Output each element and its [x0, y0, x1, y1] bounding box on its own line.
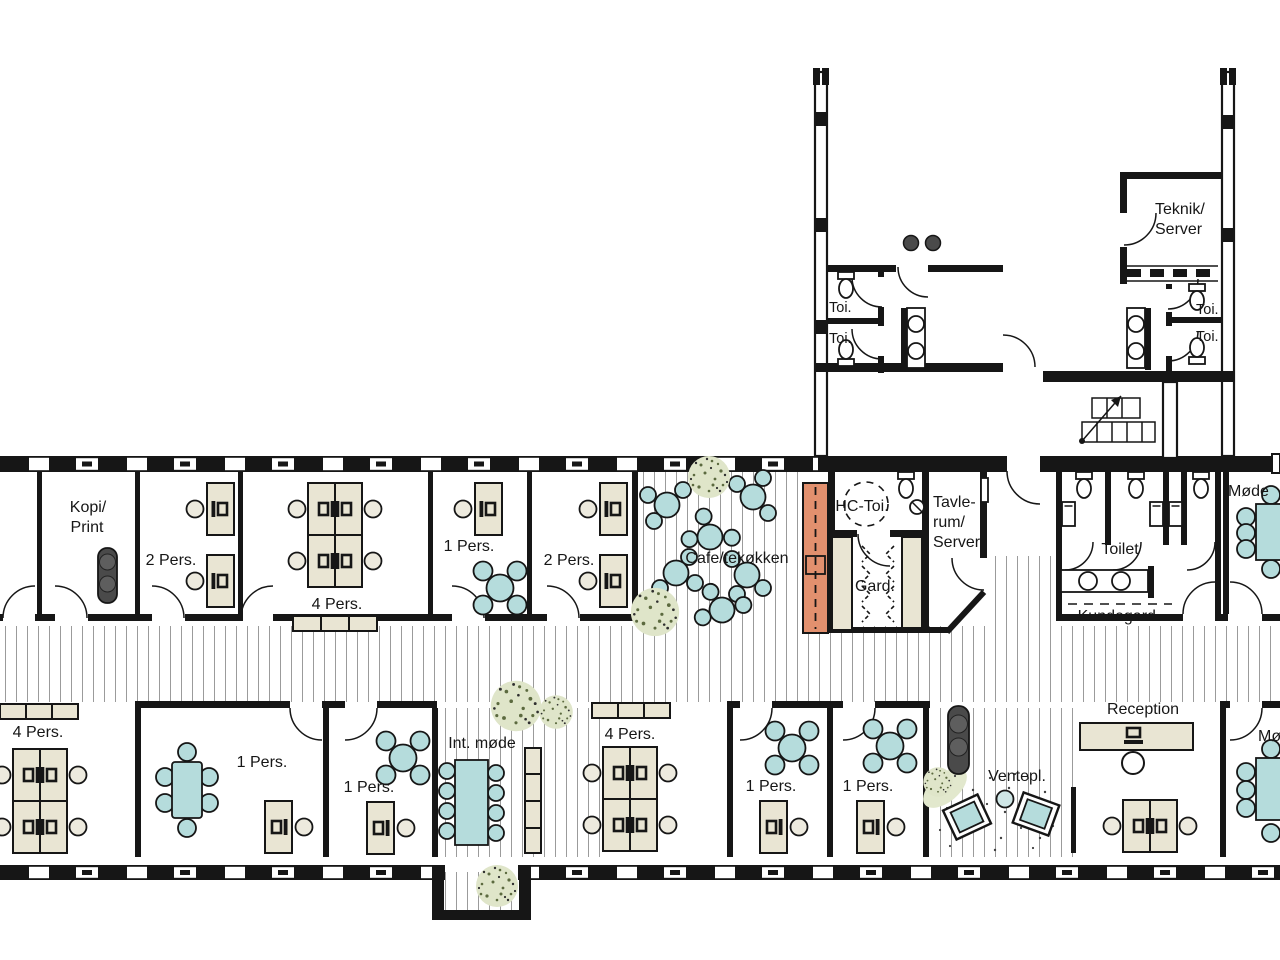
- label-ventepl: Ventepl.: [988, 768, 1046, 785]
- vanity-icon: [1061, 570, 1148, 592]
- label-tavlerum: Tavle-: [933, 494, 976, 511]
- room-1pers-b: [156, 743, 313, 853]
- room-tavlerum: [981, 478, 988, 502]
- sideboard-icon: [0, 704, 78, 719]
- label-reception: Reception: [1107, 701, 1179, 718]
- label-int-mode: Int. møde: [448, 735, 516, 752]
- room-2pers-b: [580, 483, 628, 607]
- meeting-table-icon: [1256, 758, 1280, 820]
- label-hc-toi: HC-Toi.: [835, 498, 888, 515]
- label-4pers-c: 4 Pers.: [605, 726, 656, 743]
- room-mode-bottom: [1237, 740, 1280, 842]
- floor-plan: Kopi/ Print 2 Pers. 4 Pers. 1 Pers. 2 Pe…: [0, 0, 1280, 960]
- label-toi-3: Toi.: [1196, 302, 1219, 318]
- label-kopi-print-2: Print: [71, 519, 104, 536]
- label-toilet: Toilet: [1101, 541, 1139, 558]
- room-kopi-print: [98, 548, 117, 603]
- wardrobe-icon: [902, 537, 922, 628]
- label-mode-top: Møde: [1228, 483, 1269, 500]
- tall-plant-pot-icon: [948, 706, 969, 774]
- side-table-icon: [997, 791, 1014, 808]
- label-kopi-print: Kopi/: [70, 499, 107, 516]
- room-2pers-a: [187, 483, 235, 607]
- label-1pers-a: 1 Pers.: [444, 538, 495, 555]
- sink-unit-icon: [1127, 308, 1145, 368]
- label-tavlerum-2: rum/: [933, 514, 966, 531]
- wardrobe-icon: [832, 537, 852, 630]
- sideboard-icon: [592, 703, 670, 718]
- wing-toilets-left: [838, 236, 941, 369]
- label-toi-2: Toi.: [829, 331, 852, 347]
- label-1pers-e: 1 Pers.: [843, 778, 894, 795]
- meeting-table-icon: [1256, 504, 1280, 560]
- sink-unit-icon: [907, 308, 925, 368]
- column-icon: [926, 236, 941, 251]
- label-2pers-a: 2 Pers.: [146, 552, 197, 569]
- label-1pers-b: 1 Pers.: [237, 754, 288, 771]
- reception-area: [1080, 723, 1197, 852]
- label-1pers-d: 1 Pers.: [746, 778, 797, 795]
- label-tavlerum-3: Server: [933, 534, 981, 551]
- label-4pers-a: 4 Pers.: [312, 596, 363, 613]
- label-teknik-2: Server: [1155, 221, 1203, 238]
- label-teknik: Teknik/: [1155, 201, 1205, 218]
- label-toi-4: Toi.: [1196, 329, 1219, 345]
- chair-icon: [1122, 752, 1144, 774]
- label-gard: Gard.: [855, 578, 895, 595]
- stair-icon: [1079, 396, 1155, 444]
- shelf-icon: [525, 748, 541, 853]
- sideboard-icon: [293, 616, 377, 631]
- label-2pers-b: 2 Pers.: [544, 552, 595, 569]
- label-toi-1: Toi.: [829, 300, 852, 316]
- label-1pers-c: 1 Pers.: [344, 779, 395, 796]
- column-icon: [904, 236, 919, 251]
- reception-counter-icon: [1080, 723, 1193, 750]
- label-4pers-b: 4 Pers.: [13, 724, 64, 741]
- label-kundegard: Kundegard.: [1078, 608, 1161, 625]
- wing-structure: [813, 68, 1236, 458]
- label-cafe: Cafe/tekøkken: [685, 550, 788, 567]
- label-mode-bottom: Møde: [1258, 728, 1280, 745]
